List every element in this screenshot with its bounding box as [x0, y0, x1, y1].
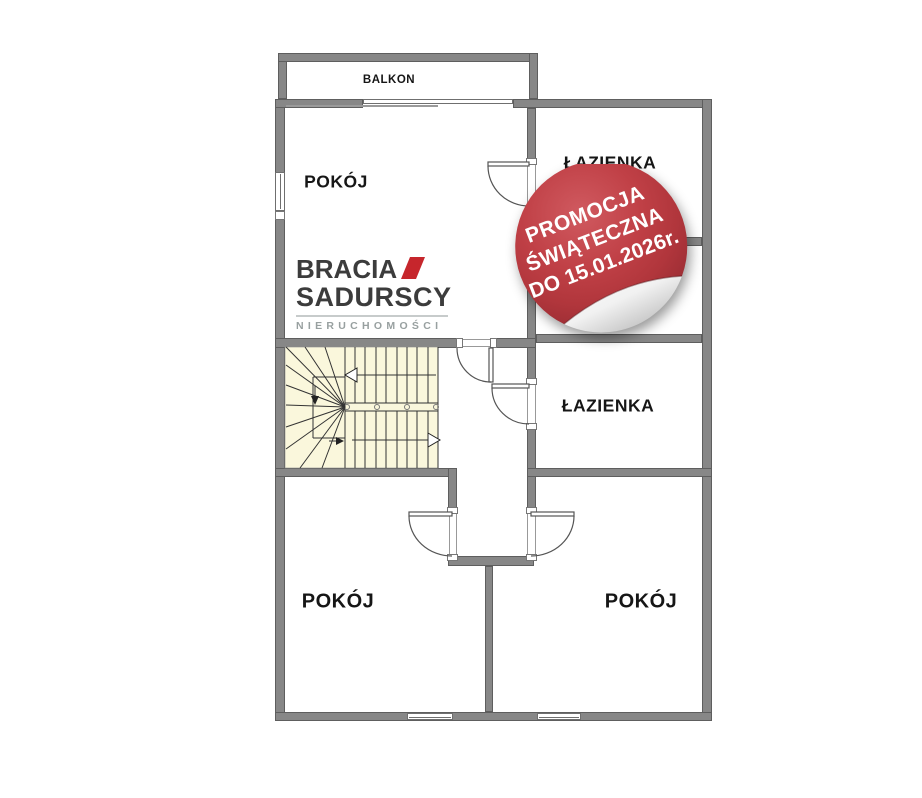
wall-balcony-right	[529, 53, 538, 99]
floor-plan-canvas: BALKON POKÓJ ŁAZIENKA A ŁAZIENKA POKÓJ P…	[0, 0, 922, 798]
door-arc-bath-middle	[492, 388, 529, 424]
balcony-window	[363, 99, 513, 104]
wall-interior-vertical-a	[527, 108, 536, 164]
door-opening-room-bl	[449, 514, 457, 555]
window-left-wall	[275, 172, 285, 211]
stairs-and-doors-layer	[0, 0, 922, 798]
door-jamb	[456, 338, 463, 348]
door-jamb	[490, 338, 497, 348]
window-mullion	[539, 717, 579, 718]
door-jamb	[447, 554, 458, 561]
wall-balcony-top	[278, 53, 538, 62]
door-arc-room-br	[531, 516, 574, 556]
promo-sticker: PROMOCJA ŚWIĄTECZNA DO 15.01.2026r.	[506, 164, 700, 336]
wall-corridor-stub-left	[448, 468, 457, 508]
window-mullion	[409, 717, 451, 718]
logo-brand-line2: SADURSCY	[296, 284, 452, 311]
door-jamb	[526, 378, 537, 385]
door-opening-bath-middle	[527, 385, 536, 424]
wall-bottom-rooms-divider	[485, 566, 493, 712]
door-arc-room-bl	[409, 516, 452, 556]
window-bottom-right	[537, 713, 581, 720]
wall-hall-top-left	[275, 338, 457, 348]
logo-divider	[296, 315, 448, 317]
room-label-pokoj-top: POKÓJ	[304, 172, 368, 193]
balcony-door-leaf	[286, 105, 438, 107]
wall-outer-top-right	[513, 99, 712, 108]
door-jamb	[526, 507, 537, 514]
wall-interior-vertical-c	[527, 424, 536, 508]
door-opening-room-br	[527, 514, 536, 555]
room-label-pokoj-br: POKÓJ	[605, 591, 678, 614]
door-jamb	[526, 554, 537, 561]
wall-corridor-stub-bottom	[448, 556, 534, 566]
door-opening-hall	[462, 339, 491, 347]
window-mullion	[280, 174, 281, 209]
room-label-lazienka-mid: ŁAZIENKA	[562, 396, 654, 417]
wall-lower-right	[527, 468, 712, 477]
logo-subtitle: NIERUCHOMOŚCI	[296, 320, 452, 332]
door-jamb	[447, 507, 458, 514]
logo-brand-line1: BRACIA	[296, 256, 397, 282]
window-bottom-left	[407, 713, 453, 720]
wall-outer-right	[702, 99, 712, 721]
staircase	[285, 347, 440, 468]
wall-outer-bottom	[275, 712, 712, 721]
room-label-balkon: BALKON	[363, 74, 415, 86]
logo-red-mark-icon	[400, 257, 427, 279]
door-jamb	[526, 423, 537, 430]
agency-logo: BRACIA SADURSCY NIERUCHOMOŚCI	[296, 256, 452, 332]
wall-lower-left	[275, 468, 457, 477]
door-arc-hall	[457, 348, 491, 382]
room-label-pokoj-bl: POKÓJ	[302, 591, 375, 614]
window-sill-block	[275, 211, 285, 220]
